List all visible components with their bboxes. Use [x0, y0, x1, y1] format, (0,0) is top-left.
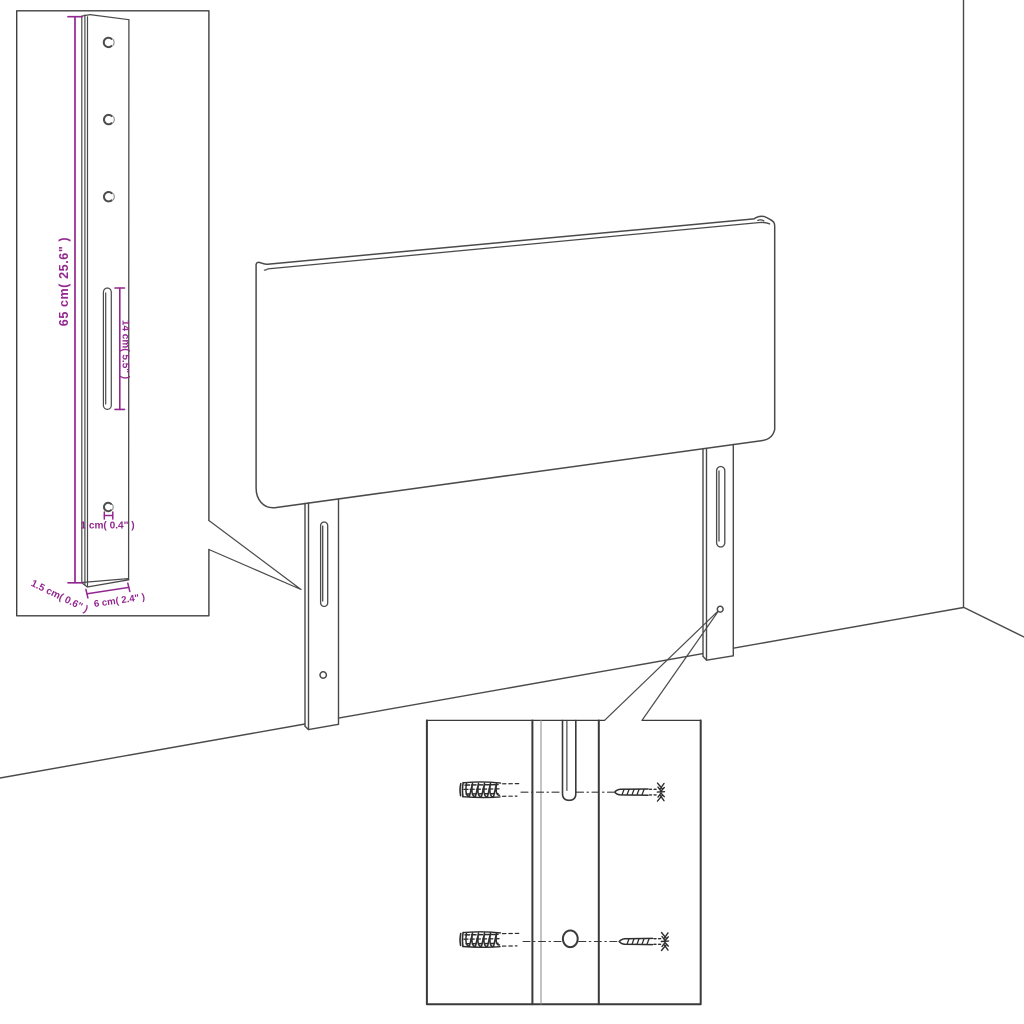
svg-text:65 cm( 25.6" ): 65 cm( 25.6" ) — [57, 237, 71, 326]
svg-text:6 cm( 2.4" ): 6 cm( 2.4" ) — [93, 592, 146, 610]
svg-text:1.5 cm( 0.6" ): 1.5 cm( 0.6" ) — [29, 578, 90, 615]
svg-text:1 cm( 0.4" ): 1 cm( 0.4" ) — [80, 521, 134, 532]
svg-text:14 cm( 5.5" ): 14 cm( 5.5" ) — [120, 320, 131, 379]
